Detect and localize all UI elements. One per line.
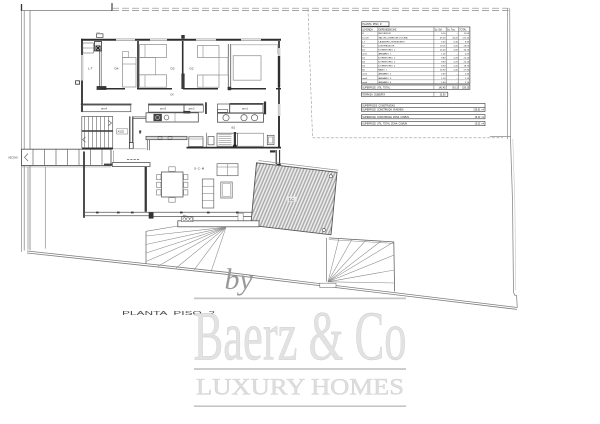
svg-text:arm2: arm2 [189, 107, 195, 111]
svg-text:LEYENDA: LEYENDA [362, 28, 373, 31]
svg-text:--: -- [456, 33, 458, 35]
svg-text:30.13: 30.13 [452, 87, 458, 89]
svg-text:arm1: arm1 [362, 52, 368, 55]
svg-text:SUPERFICIE CONSTRUIDA VIVIEN: SUPERFICIE CONSTRUIDA VIVIENDA [362, 109, 404, 112]
svg-text:LAVADERO-TENDEDERO: LAVADERO-TENDEDERO [379, 40, 405, 43]
svg-text:arm1: arm1 [242, 106, 248, 110]
svg-text:DI: DI [171, 93, 174, 97]
svg-text:18.70: 18.70 [464, 66, 470, 68]
svg-text:11.05: 11.05 [464, 33, 470, 35]
svg-text:DORMITORIO 2: DORMITORIO 2 [379, 58, 396, 60]
svg-text:Su. Útil: Su. Útil [435, 28, 443, 31]
svg-text:TOTAL: TOTAL [459, 28, 467, 31]
svg-text:45.20: 45.20 [440, 37, 446, 39]
svg-text:D4: D4 [115, 66, 119, 70]
svg-text:15.40: 15.40 [440, 49, 446, 51]
svg-text:22.10: 22.10 [464, 62, 470, 64]
svg-text:arm4: arm4 [101, 107, 107, 111]
svg-text:22.15: 22.15 [464, 58, 470, 60]
svg-text:27.30: 27.30 [464, 70, 470, 72]
svg-text:T-C: T-C [289, 198, 295, 202]
svg-text:D3: D3 [171, 66, 175, 70]
svg-text:DEPENDENCIAS: DEPENDENCIAS [379, 28, 397, 31]
svg-text:arm4: arm4 [362, 81, 368, 84]
svg-text:--: -- [456, 53, 458, 55]
svg-text:by: by [225, 263, 254, 296]
svg-text:--: -- [456, 74, 458, 76]
svg-text:--: -- [456, 82, 458, 84]
svg-text:SUPERFICIE CONSTRUIDA ZONA: SUPERFICIE CONSTRUIDA ZONA COMUN [362, 116, 409, 119]
svg-text:DORMITORIO 3: DORMITORIO 3 [379, 62, 396, 64]
svg-text:PLANTA PISO 2º: PLANTA PISO 2º [363, 22, 383, 26]
svg-text:18.20: 18.20 [452, 37, 458, 39]
svg-text:DORMITORIO 4: DORMITORIO 4 [379, 66, 396, 68]
svg-text:ASCE: ASCE [118, 131, 125, 134]
svg-text:142.45: 142.45 [439, 87, 447, 89]
svg-text:arm3: arm3 [362, 77, 368, 80]
svg-text:Su. Tza: Su. Tza [447, 29, 455, 31]
svg-text:Baerz & Co: Baerz & Co [194, 299, 407, 376]
svg-text:SALON-COMEDOR-COCINA: SALON-COMEDOR-COCINA [379, 36, 408, 39]
svg-text:bbq: bbq [183, 215, 186, 217]
svg-text:DISTRIBUIDOR: DISTRIBUIDOR [379, 45, 395, 47]
svg-text:20.05: 20.05 [464, 45, 470, 47]
svg-text:ARMARIO 2: ARMARIO 2 [379, 73, 392, 76]
svg-text:ARMARIO 3: ARMARIO 3 [379, 77, 392, 80]
svg-text:BAÑO 1: BAÑO 1 [379, 69, 388, 72]
svg-text:526.25: 526.25 [462, 87, 470, 89]
svg-text:LUXURY HOMES: LUXURY HOMES [196, 375, 404, 400]
svg-text:SUPERFICIE UTIL TOTAL ZONA: SUPERFICIE UTIL TOTAL ZONA COMUN [362, 123, 407, 126]
svg-text:L-T: L-T [88, 66, 93, 70]
svg-text:B1: B1 [232, 125, 236, 129]
svg-text:14.90: 14.90 [440, 70, 446, 72]
svg-text:13.02 m²: 13.02 m² [475, 123, 485, 126]
svg-text:ARMARIO 1: ARMARIO 1 [379, 52, 392, 55]
svg-text:arm2: arm2 [362, 73, 368, 76]
svg-text:S-C-M: S-C-M [362, 37, 368, 39]
svg-text:RECIBIDOR: RECIBIDOR [379, 33, 392, 35]
svg-text:TERRAZA CUBIERTA: TERRAZA CUBIERTA [362, 94, 385, 97]
svg-text:SUPERFICIE UTIL TOTAL: SUPERFICIE UTIL TOTAL [362, 86, 391, 89]
svg-text:D2: D2 [190, 66, 194, 70]
svg-text:S-C-M: S-C-M [194, 166, 205, 170]
svg-text:34.15: 34.15 [464, 49, 470, 51]
svg-text:15.13 m²: 15.13 m² [475, 116, 485, 119]
svg-text:10.15: 10.15 [440, 45, 446, 47]
svg-text:--: -- [456, 78, 458, 80]
svg-text:ARMARIO 4: ARMARIO 4 [379, 81, 392, 84]
svg-text:DORMITORIO 1: DORMITORIO 1 [379, 49, 396, 51]
svg-text:135.82 m²: 135.82 m² [473, 109, 484, 112]
svg-text:25.50: 25.50 [440, 95, 446, 97]
svg-text:arm3: arm3 [160, 107, 166, 111]
svg-text:VECINO: VECINO [8, 156, 18, 160]
svg-text:122.10: 122.10 [462, 37, 469, 39]
